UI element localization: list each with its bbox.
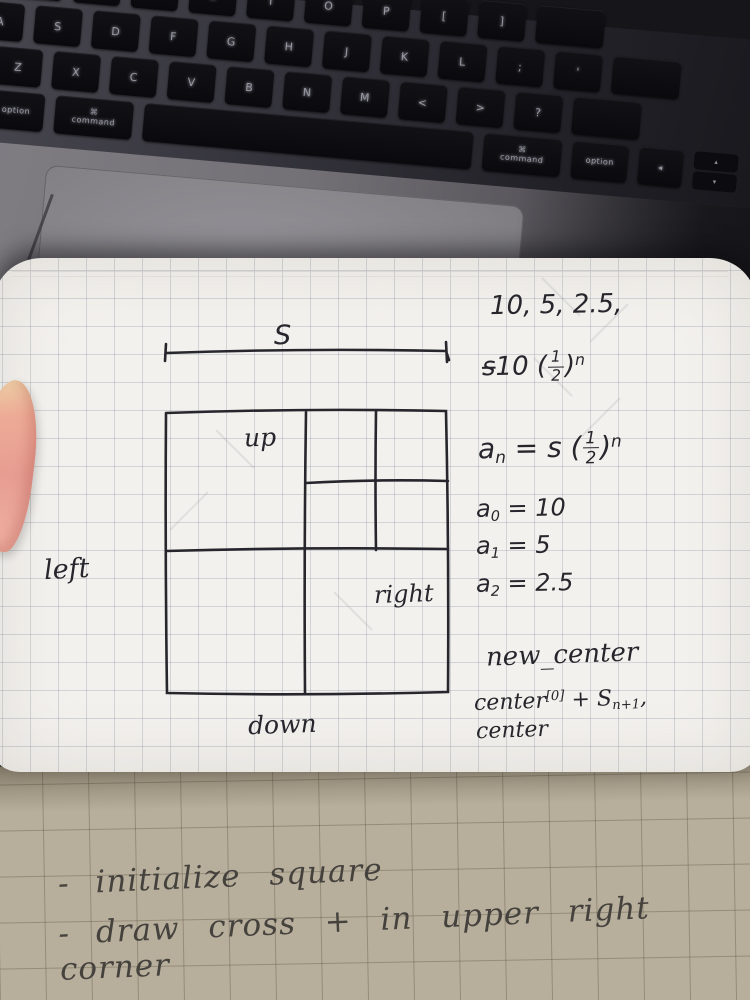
vertical-midline [305,412,306,693]
center-subscript: n+1 [612,697,640,713]
arrow-down-key: ▾ [692,171,737,193]
keyboard-key: > [455,86,505,128]
option-key-left: option [0,89,46,132]
scratch-close: ) [565,351,576,381]
keyboard-key: I [246,0,296,22]
keyboard-key: Y [130,0,180,12]
keyboard-key: Z [0,46,43,88]
formula-exponent: n [611,431,622,451]
cross-horizontal-line [306,480,448,483]
square-label-up: up [244,422,277,452]
keyboard-key: K [380,36,430,78]
keyboard-key: L [437,41,487,83]
command-icon: ⌘ [518,146,527,156]
keyboard-key: X [51,51,101,93]
new-center-note: new_center [486,637,639,672]
term-line: a0 = 10 [476,493,574,525]
square-label-down: down [248,709,318,740]
scratch-exponent: n [575,351,585,369]
keyboard-key: ] [477,0,527,42]
center-superscript: [0] [545,689,564,705]
fraction-one-half: 12 [582,429,599,466]
command-key-right: ⌘ command [482,133,563,178]
keyboard-key: ; [495,46,545,88]
formula-lhs-sub: n [495,447,506,467]
notebook-page: S up left right down 10, 5, 2.5, s10 (12… [0,258,750,772]
kraft-page: -initialize square -draw cross + in uppe… [0,753,750,1000]
term-line: a2 = 2.5 [476,568,574,600]
keyboard-key: R [15,0,65,1]
note-line: -draw cross + in upper right corner [58,888,701,988]
keyboard-key: ? [513,91,563,133]
scratch-formula: s10 (12)n [482,349,586,385]
note-list: -initialize square -draw cross + in uppe… [57,846,699,993]
center-mid: + S [564,686,612,713]
keyboard-key: G [206,20,256,62]
keyboard-key: D [91,10,141,52]
keyboard-key: V [167,61,217,103]
square-label-left: left [43,553,90,586]
formula-lhs: a [478,432,496,465]
scratch-prefix: 10 ( [495,351,547,382]
keyboard-key: S [33,5,83,47]
arrow-up-down-keys: ▴ ▾ [692,151,739,193]
center-comma: , [639,685,647,710]
center-base: center [474,689,547,716]
horizontal-midline [166,548,448,551]
term-line: a1 = 5 [476,530,574,562]
keyboard-key: N [282,71,332,113]
formula-eq: = s ( [506,431,582,465]
keyboard-key: H [264,25,314,67]
formula-close: ) [600,430,612,463]
keyboard-key: F [148,15,198,57]
keyboard-key [571,96,642,140]
keyboard-key: M [340,76,390,118]
arrow-left-key: ◂ [637,146,684,188]
general-term-formula: an = s (12)n [478,429,622,468]
term-list: a0 = 10 a1 = 5 a2 = 2.5 [476,494,573,606]
keyboard-key: B [224,66,274,108]
crossed-out-scribble: s [482,352,496,382]
keyboard-key: P [362,0,412,32]
keyboard-key: U [188,0,238,17]
command-key-left: ⌘ command [53,95,134,140]
keyboard-key: T [73,0,123,6]
square-label-right: right [374,579,435,609]
keyboard-key: C [109,56,159,98]
square-outline [166,410,449,694]
fraction-one-half: 12 [548,349,565,383]
sequence-note: 10, 5, 2.5, [490,289,623,321]
keyboard-key [535,5,606,49]
photo-scene: ERTYUIOP[] ASDFGHJKL;' ZXCVBNM<>? ^ opti… [0,0,750,1000]
keyboard-key [611,56,682,100]
option-key-right: option [570,141,629,184]
keyboard-key: O [304,0,354,27]
keyboard-key: ' [553,51,603,93]
dimension-line [165,342,449,362]
keyboard-key: [ [419,0,469,37]
keyboard-key: A [0,0,25,42]
command-icon: ⌘ [89,109,98,119]
center-formula-line2: center [476,717,549,744]
dimension-label: S [274,320,291,351]
keyboard-key: < [398,81,448,123]
keyboard-key: J [322,30,372,72]
arrow-up-key: ▴ [693,151,738,173]
